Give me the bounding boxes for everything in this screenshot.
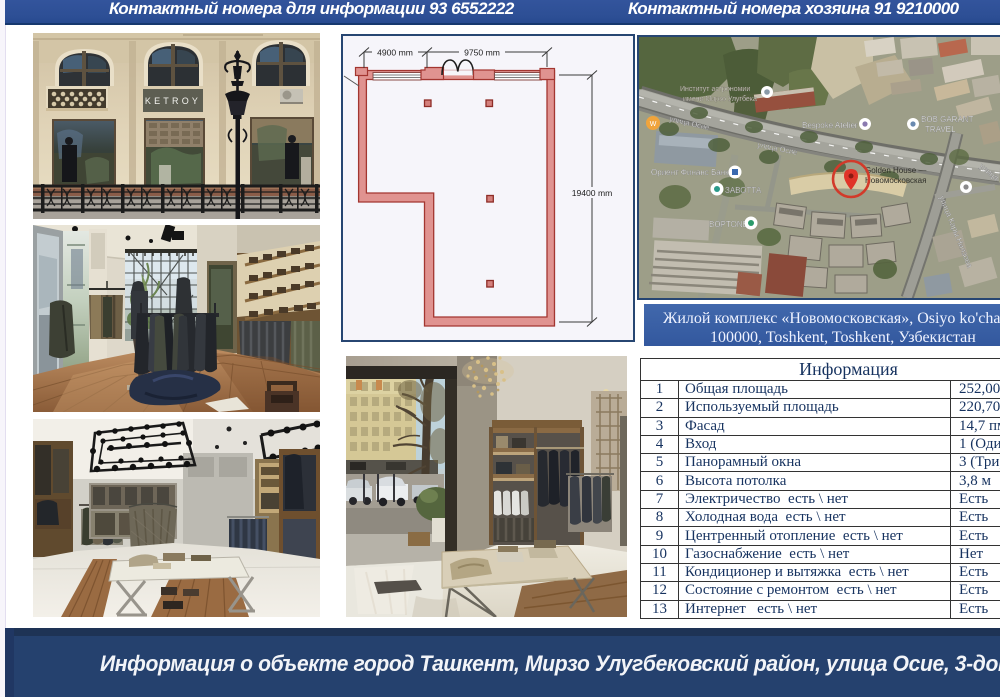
svg-text:Институт астрономии: Институт астрономии [680,86,750,93]
svg-text:W: W [650,121,657,128]
svg-text:4900 mm: 4900 mm [377,48,413,58]
svg-text:TRAVEL: TRAVEL [925,125,956,134]
svg-text:ЗАВОТТА: ЗАВОТТА [725,186,762,195]
svg-text:19400 mm: 19400 mm [572,188,613,198]
svg-text:9750 mm: 9750 mm [464,48,500,58]
svg-text:Ориент Финанс Банк: Ориент Финанс Банк [651,168,729,177]
svg-text:Golden House —: Golden House — [865,166,926,175]
svg-text:Bespoke Atelier: Bespoke Atelier [802,121,858,130]
svg-text:KETROY: KETROY [145,96,201,106]
svg-text:BOB GARANT: BOB GARANT [921,115,974,124]
svg-text:имени Мирзо Улугбека: имени Мирзо Улугбека [683,95,757,103]
svg-text:BOPTONE: BOPTONE [709,220,748,229]
svg-text:Новомосковская: Новомосковская [865,176,926,185]
